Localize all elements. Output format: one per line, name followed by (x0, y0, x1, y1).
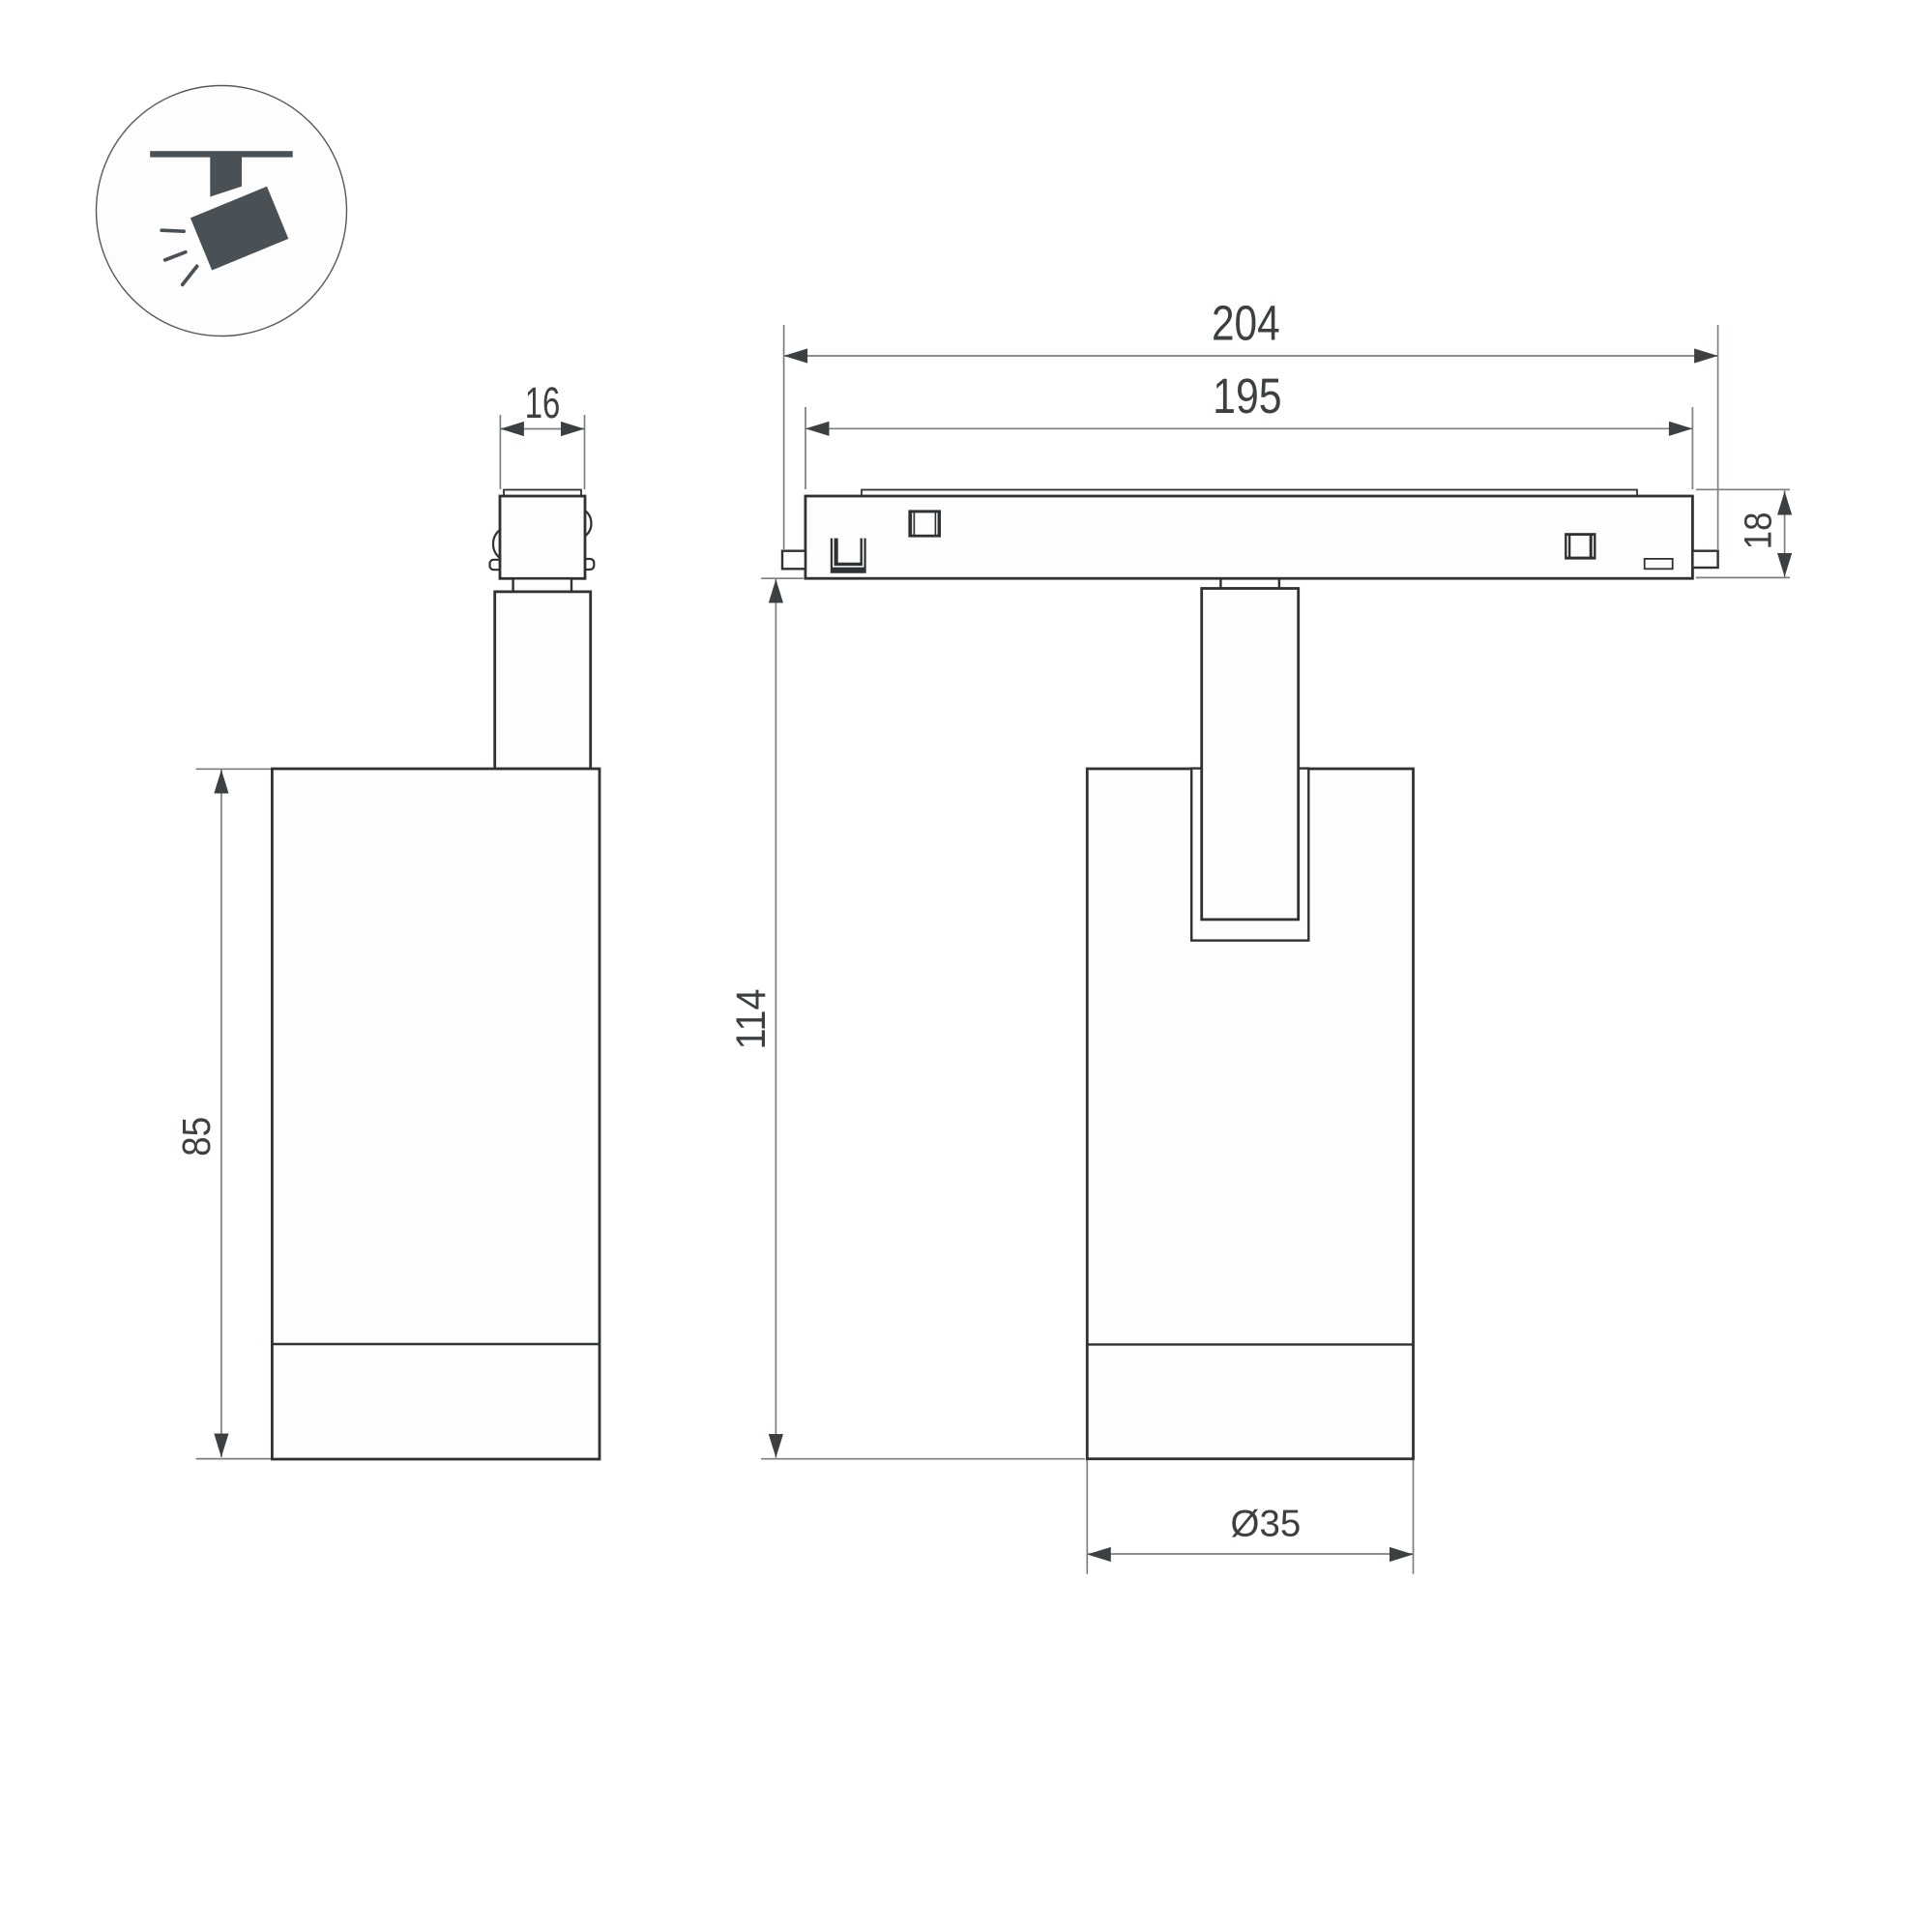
svg-text:204: 204 (1212, 296, 1280, 351)
svg-text:16: 16 (525, 379, 561, 427)
svg-text:195: 195 (1213, 367, 1281, 423)
svg-text:85: 85 (176, 1117, 220, 1156)
svg-text:18: 18 (1736, 512, 1779, 550)
svg-text:114: 114 (727, 988, 774, 1049)
svg-text:Ø35: Ø35 (1231, 1504, 1302, 1545)
